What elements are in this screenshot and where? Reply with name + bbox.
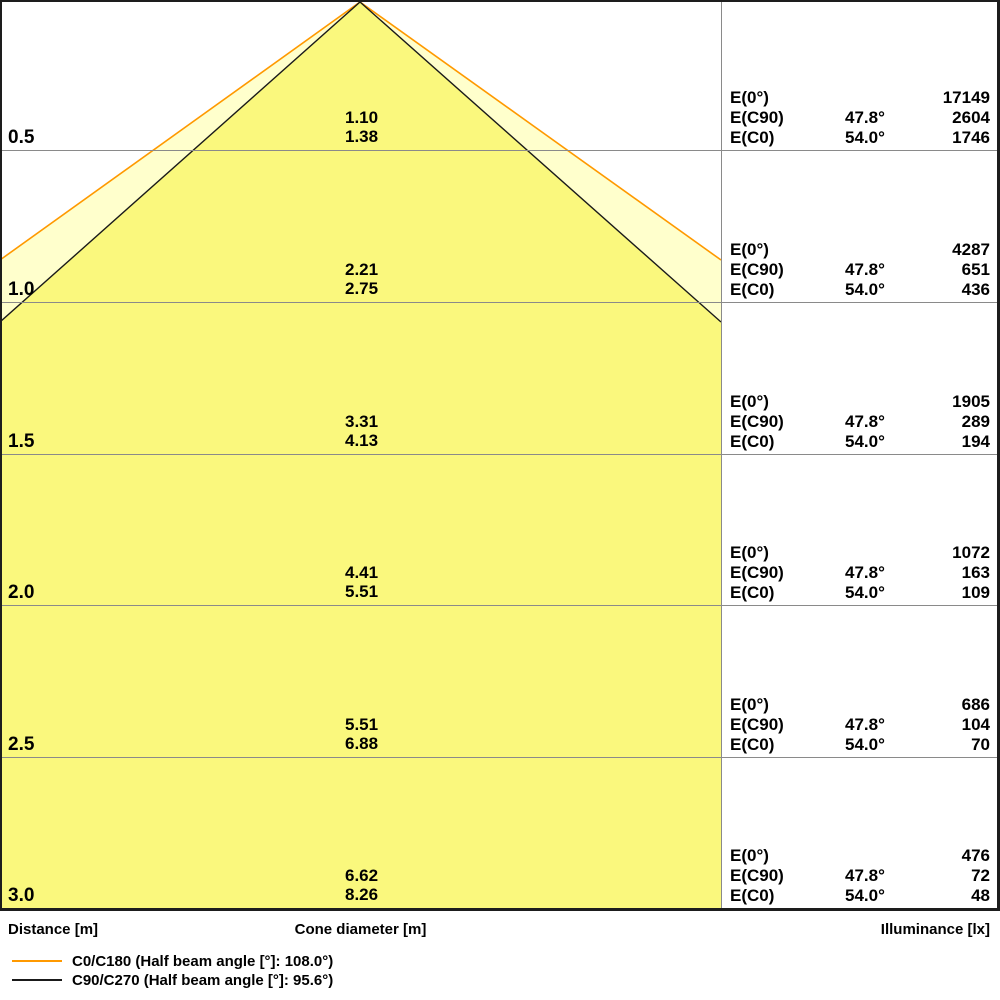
cone-diameter-c90-value: 4.41 — [345, 563, 378, 582]
ec0-label: E(C0) — [730, 128, 845, 148]
legend-c90-line-sample — [12, 979, 62, 981]
frame-border-left — [0, 0, 2, 911]
cone-diameter-c90-value: 6.62 — [345, 866, 378, 885]
ec90-value: 72 — [907, 866, 990, 886]
illuminance-row: E(0°)476 E(C90)47.8°72 E(C0)54.0°48 — [721, 846, 997, 906]
ec90-label: E(C90) — [730, 260, 845, 280]
ec0-angle: 54.0° — [845, 280, 907, 300]
ec90-value: 104 — [907, 715, 990, 735]
cone-diameter-values: 1.10 1.38 — [345, 108, 378, 146]
ec0-label: E(C0) — [730, 432, 845, 452]
cone-diameter-c0-value: 4.13 — [345, 431, 378, 450]
grid-line-2.0m — [2, 605, 998, 606]
legend-c0-label: C0/C180 (Half beam angle [°]: 108.0°) — [72, 952, 333, 971]
grid-line-1.5m — [2, 454, 998, 455]
cone-diameter-c0-value: 5.51 — [345, 582, 378, 601]
cone-diameter-axis-label: Cone diameter [m] — [0, 919, 721, 941]
e0-value: 17149 — [907, 88, 990, 108]
photometric-cone-diagram: 0.5 1.0 1.5 2.0 2.5 3.0 1.10 1.38 2.21 2… — [0, 0, 1000, 1000]
frame-border-bottom — [0, 908, 1000, 911]
ec0-value: 70 — [907, 735, 990, 755]
ec90-label: E(C90) — [730, 715, 845, 735]
ec0-angle: 54.0° — [845, 583, 907, 603]
ec0-label: E(C0) — [730, 886, 845, 906]
ec90-value: 289 — [907, 412, 990, 432]
illuminance-row: E(0°)686 E(C90)47.8°104 E(C0)54.0°70 — [721, 695, 997, 755]
cone-diameter-c0-value: 1.38 — [345, 127, 378, 146]
cone-diameter-c0-value: 8.26 — [345, 885, 378, 904]
ec90-label: E(C90) — [730, 108, 845, 128]
ec90-angle: 47.8° — [845, 108, 907, 128]
cone-diameter-values: 2.21 2.75 — [345, 260, 378, 298]
distance-label: 1.5 — [8, 430, 34, 454]
ec0-label: E(C0) — [730, 735, 845, 755]
cone-diameter-c0-value: 2.75 — [345, 279, 378, 298]
cone-diameter-c90-value: 5.51 — [345, 715, 378, 734]
ec0-angle: 54.0° — [845, 432, 907, 452]
e0-value: 476 — [907, 846, 990, 866]
ec0-label: E(C0) — [730, 583, 845, 603]
legend-c90-label: C90/C270 (Half beam angle [°]: 95.6°) — [72, 971, 333, 990]
grid-line-1.0m — [2, 302, 998, 303]
ec0-angle: 54.0° — [845, 886, 907, 906]
cone-diameter-values: 4.41 5.51 — [345, 563, 378, 601]
distance-label: 2.5 — [8, 733, 34, 757]
illuminance-axis-label: Illuminance [lx] — [881, 919, 990, 941]
distance-label: 1.0 — [8, 278, 34, 302]
e0-value: 4287 — [907, 240, 990, 260]
ec90-value: 651 — [907, 260, 990, 280]
illuminance-row: E(0°)1072 E(C90)47.8°163 E(C0)54.0°109 — [721, 543, 997, 603]
illuminance-row: E(0°)4287 E(C90)47.8°651 E(C0)54.0°436 — [721, 240, 997, 300]
ec0-value: 194 — [907, 432, 990, 452]
ec90-value: 2604 — [907, 108, 990, 128]
cone-diameter-c90-value: 2.21 — [345, 260, 378, 279]
e0-label: E(0°) — [730, 392, 845, 412]
e0-value: 1072 — [907, 543, 990, 563]
legend-c0-line-sample — [12, 960, 62, 962]
ec0-angle: 54.0° — [845, 735, 907, 755]
distance-label: 3.0 — [8, 884, 34, 908]
e0-label: E(0°) — [730, 846, 845, 866]
cone-diameter-values: 5.51 6.88 — [345, 715, 378, 753]
frame-border-top — [0, 0, 1000, 2]
distance-label: 2.0 — [8, 581, 34, 605]
ec90-angle: 47.8° — [845, 866, 907, 886]
cone-diameter-values: 3.31 4.13 — [345, 412, 378, 450]
ec0-value: 1746 — [907, 128, 990, 148]
cone-diameter-values: 6.62 8.26 — [345, 866, 378, 904]
illuminance-row: E(0°)1905 E(C90)47.8°289 E(C0)54.0°194 — [721, 392, 997, 452]
grid-line-0.5m — [2, 150, 998, 151]
distance-label: 0.5 — [8, 126, 34, 150]
e0-label: E(0°) — [730, 240, 845, 260]
e0-value: 686 — [907, 695, 990, 715]
ec90-value: 163 — [907, 563, 990, 583]
cone-diameter-c90-value: 3.31 — [345, 412, 378, 431]
ec0-label: E(C0) — [730, 280, 845, 300]
ec90-angle: 47.8° — [845, 260, 907, 280]
ec0-angle: 54.0° — [845, 128, 907, 148]
ec0-value: 436 — [907, 280, 990, 300]
e0-label: E(0°) — [730, 543, 845, 563]
e0-value: 1905 — [907, 392, 990, 412]
ec0-value: 48 — [907, 886, 990, 906]
ec0-value: 109 — [907, 583, 990, 603]
e0-label: E(0°) — [730, 695, 845, 715]
ec90-angle: 47.8° — [845, 715, 907, 735]
ec90-label: E(C90) — [730, 412, 845, 432]
grid-line-2.5m — [2, 757, 998, 758]
illuminance-row: E(0°)17149 E(C90)47.8°2604 E(C0)54.0°174… — [721, 88, 997, 148]
e0-label: E(0°) — [730, 88, 845, 108]
ec90-label: E(C90) — [730, 563, 845, 583]
ec90-label: E(C90) — [730, 866, 845, 886]
cone-diameter-c0-value: 6.88 — [345, 734, 378, 753]
ec90-angle: 47.8° — [845, 412, 907, 432]
cone-diameter-c90-value: 1.10 — [345, 108, 378, 127]
ec90-angle: 47.8° — [845, 563, 907, 583]
